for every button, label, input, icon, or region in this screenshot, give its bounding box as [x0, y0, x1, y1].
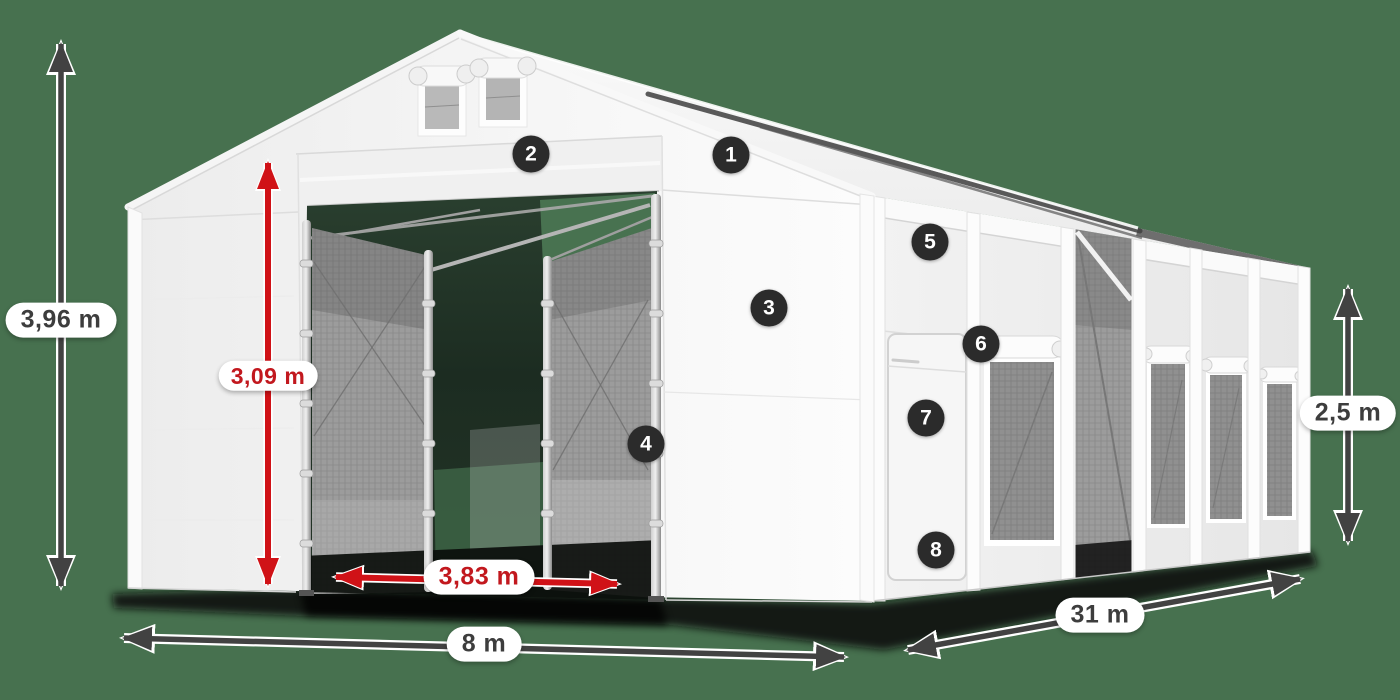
feature-badge-4: 4 — [628, 426, 665, 463]
dimension-label-total-height: 3,96 m — [6, 303, 117, 338]
front-doorway — [299, 191, 664, 602]
front-right-corner-sleeve — [860, 194, 874, 602]
feature-badge-3: 3 — [751, 290, 788, 327]
feature-badge-7: 7 — [908, 400, 945, 437]
vent-window-left — [409, 65, 475, 136]
feature-badge-5: 5 — [912, 224, 949, 261]
front-left-corner-sleeve — [128, 207, 142, 589]
feature-badge-6: 6 — [963, 326, 1000, 363]
side-open-section — [1074, 229, 1133, 578]
side-window-1 — [974, 336, 1068, 546]
feature-badge-2: 2 — [513, 136, 550, 173]
dimension-label-door-width: 3,83 m — [424, 560, 535, 595]
feature-badge-1: 1 — [713, 137, 750, 174]
feature-badge-8: 8 — [918, 532, 955, 569]
dimension-label-length: 31 m — [1056, 598, 1145, 633]
dimension-label-width: 8 m — [447, 627, 522, 662]
dimension-label-side-height: 2,5 m — [1300, 396, 1396, 431]
left-mesh-gate — [312, 228, 430, 594]
tent-illustration — [0, 0, 1400, 700]
vent-window-right — [470, 57, 536, 127]
tent-diagram-stage: 3,96 m 3,09 m 3,83 m 8 m 31 m 2,5 m 1 2 … — [0, 0, 1400, 700]
dimension-label-door-height: 3,09 m — [219, 361, 318, 391]
